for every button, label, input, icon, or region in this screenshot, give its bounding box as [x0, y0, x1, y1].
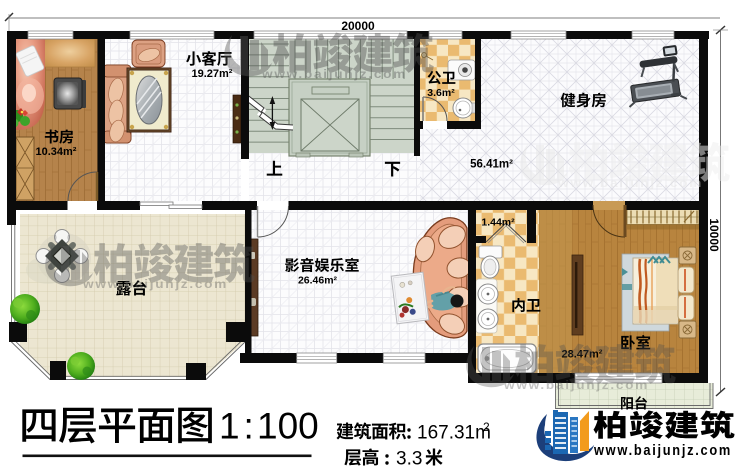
svg-text::: : [244, 406, 254, 447]
svg-text:19.27m²: 19.27m² [192, 68, 233, 80]
svg-text:2: 2 [483, 420, 490, 434]
svg-text:www.baijunjz.com: www.baijunjz.com [557, 176, 703, 190]
svg-text:100: 100 [257, 406, 319, 447]
svg-text:10000: 10000 [707, 218, 721, 252]
svg-text:56.41m²: 56.41m² [470, 159, 513, 171]
svg-text:3.3: 3.3 [396, 449, 422, 470]
svg-text:www.baijunjz.com: www.baijunjz.com [593, 442, 732, 459]
svg-text:3.6m²: 3.6m² [427, 87, 455, 99]
svg-text:www.baijunjz.com: www.baijunjz.com [261, 67, 407, 81]
svg-text:www.baijunjz.com: www.baijunjz.com [503, 378, 649, 392]
svg-text:1.44m²: 1.44m² [481, 217, 515, 229]
svg-text:26.46m²: 26.46m² [298, 275, 338, 287]
svg-text:20000: 20000 [341, 19, 375, 33]
svg-text:www.baijunjz.com: www.baijunjz.com [82, 277, 228, 291]
svg-text:1: 1 [219, 406, 240, 447]
svg-text:167.31m: 167.31m [417, 423, 491, 444]
svg-text:10.34m²: 10.34m² [36, 146, 77, 158]
